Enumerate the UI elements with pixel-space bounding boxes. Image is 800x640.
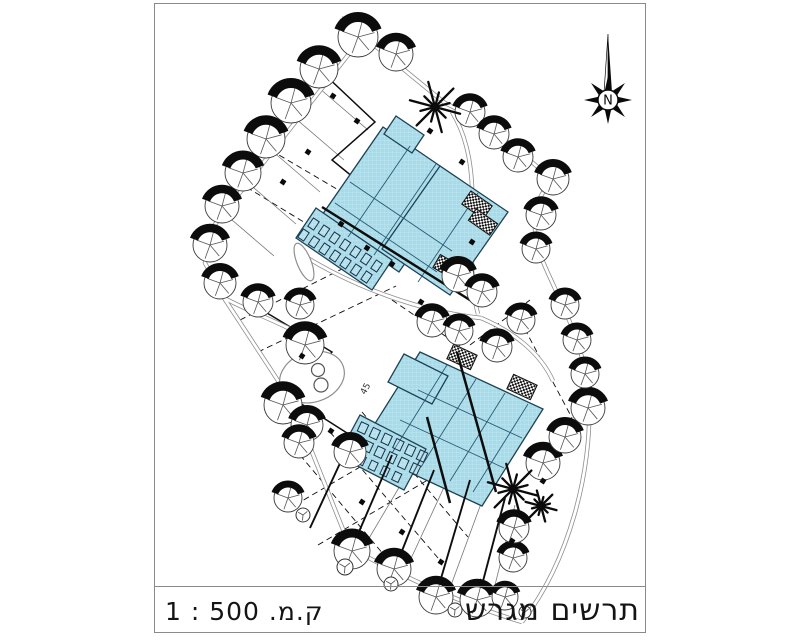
scale-label: ק.מ. 500 : 1 [165, 597, 385, 626]
sheet-border [154, 3, 646, 633]
drawing-sheet: 45N תרשים מגרש ק.מ. 500 : 1 [0, 0, 800, 640]
drawing-title: תרשים מגרש [390, 593, 640, 628]
